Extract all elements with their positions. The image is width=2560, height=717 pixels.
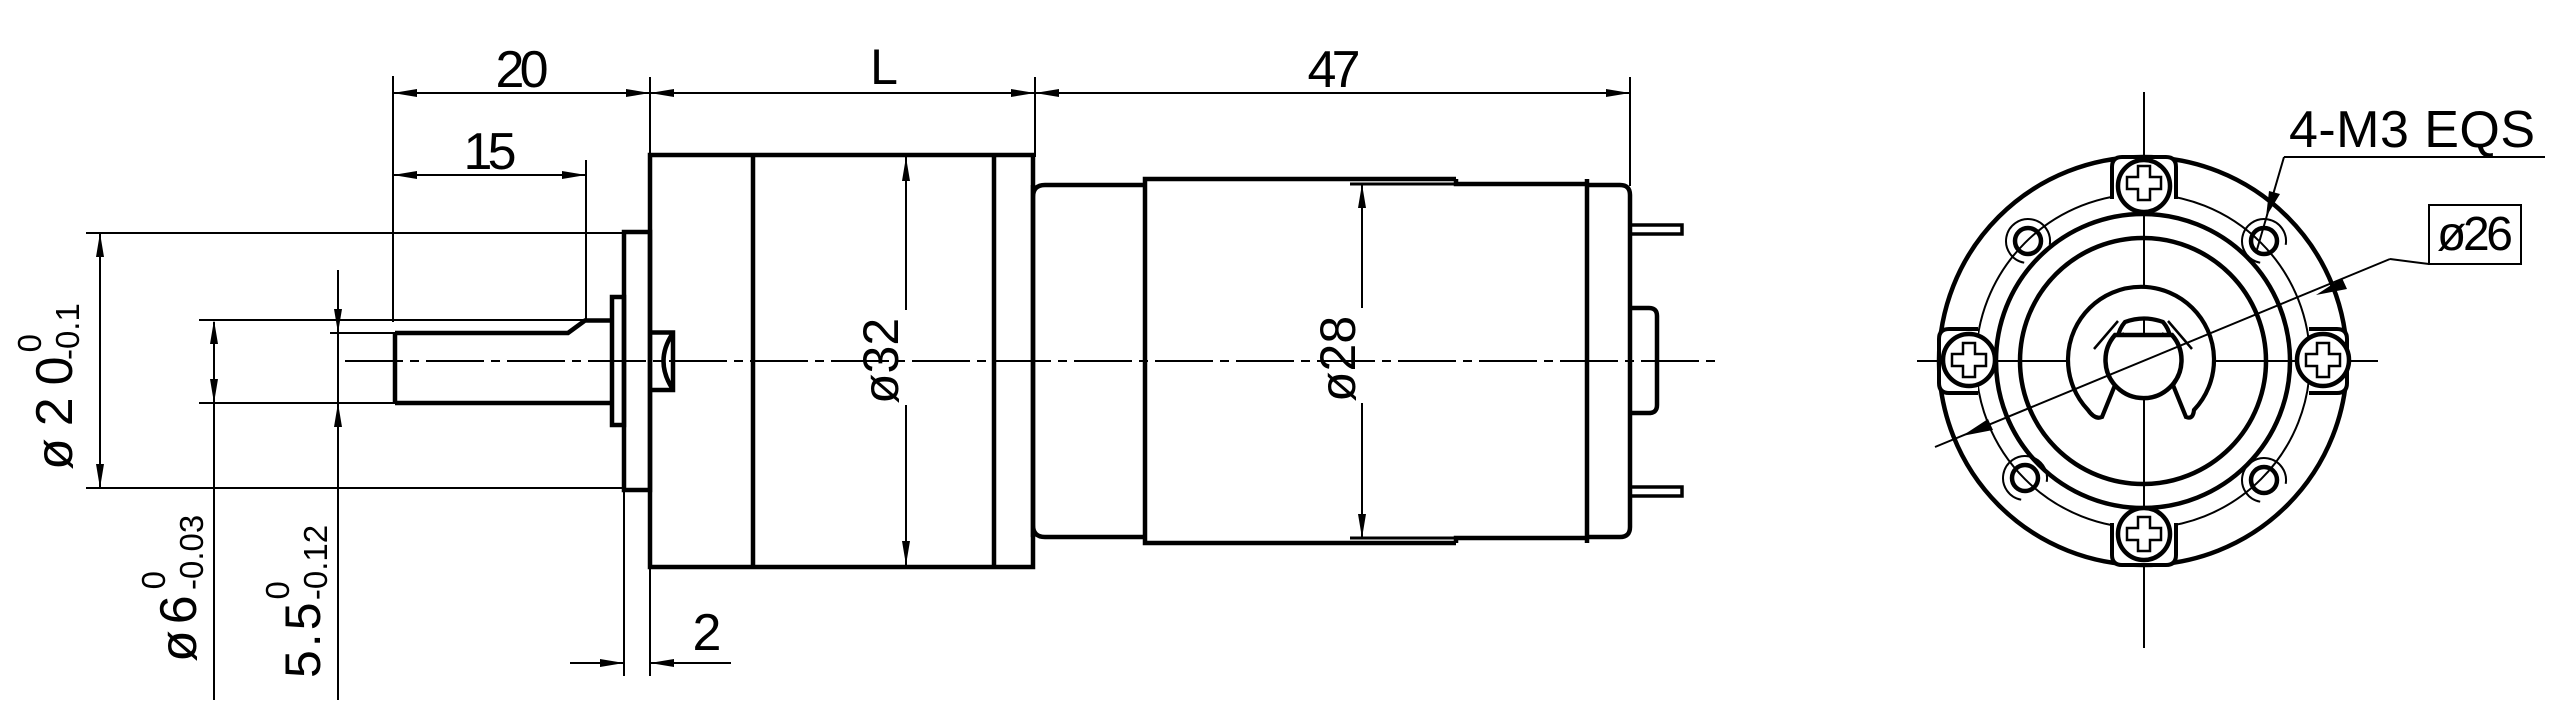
svg-text:L: L xyxy=(870,39,898,95)
svg-text:20: 20 xyxy=(496,41,549,99)
svg-text:47: 47 xyxy=(1308,41,1361,99)
svg-text:ø32: ø32 xyxy=(853,318,909,404)
svg-text:ø26: ø26 xyxy=(2437,208,2513,261)
svg-text:4-M3 EQS: 4-M3 EQS xyxy=(2289,101,2535,159)
svg-text:15: 15 xyxy=(464,123,517,181)
svg-text:ø28: ø28 xyxy=(1310,316,1366,402)
svg-text:2: 2 xyxy=(693,604,722,662)
